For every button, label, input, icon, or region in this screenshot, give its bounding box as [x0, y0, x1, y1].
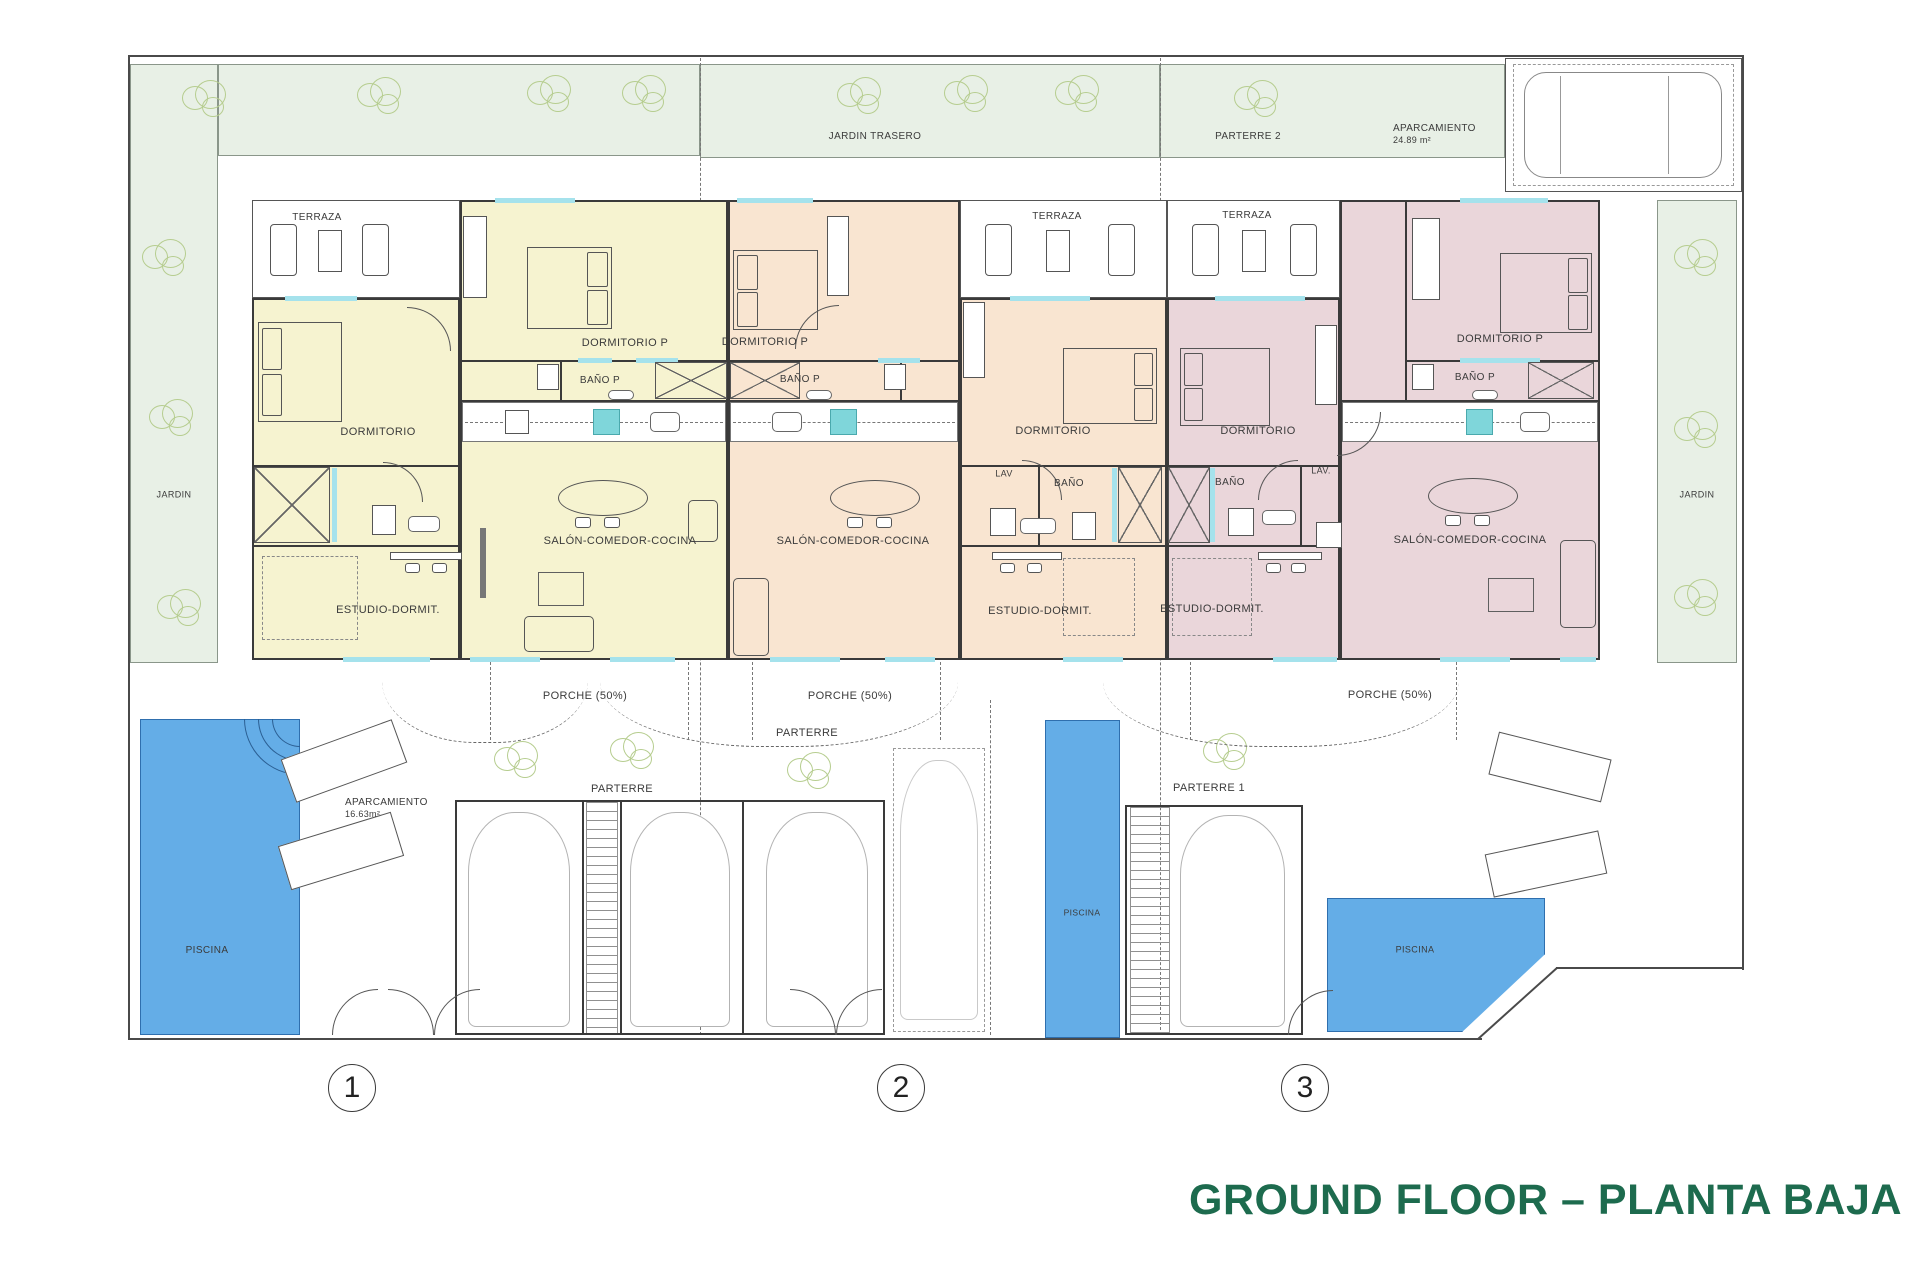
unit3-number-badge: 3 — [1281, 1064, 1329, 1112]
chair-icon — [1000, 563, 1015, 573]
label-unit3-dormitorio: DORMITORIO — [1220, 425, 1295, 439]
label-aparcamiento-1: APARCAMIENTO 16.63m² — [345, 796, 428, 821]
label-unit3-lav: LAV. — [1311, 465, 1331, 476]
stove-icon — [593, 409, 620, 435]
label-unit2-estudio: ESTUDIO-DORMIT. — [988, 605, 1092, 619]
label-unit1-porche: PORCHE (50%) — [543, 690, 627, 704]
wall — [582, 800, 584, 1035]
label-unit1-dormitorio: DORMITORIO — [340, 426, 415, 440]
desk-icon — [390, 552, 462, 560]
tv-icon — [480, 528, 486, 598]
site-boundary-bottom — [128, 1038, 1482, 1040]
stove-icon — [830, 409, 857, 435]
chair-icon — [1445, 515, 1461, 526]
site-boundary-right — [1742, 55, 1744, 970]
label-unit3-bano: BAÑO — [1215, 477, 1245, 490]
sofa-icon — [1560, 540, 1596, 628]
tree-icon — [622, 75, 668, 117]
chair-icon — [1027, 563, 1042, 573]
tree-icon — [1674, 239, 1720, 281]
tree-icon — [157, 589, 203, 631]
site-boundary-bottom-right — [1556, 967, 1744, 969]
chair-icon — [604, 517, 620, 528]
wall — [560, 360, 562, 400]
chair-icon — [405, 563, 420, 573]
unit1-number-badge: 1 — [328, 1064, 376, 1112]
desk-icon — [992, 552, 1062, 560]
porch-column-line — [752, 662, 753, 740]
sink-icon — [772, 412, 802, 432]
wardrobe-icon — [463, 216, 487, 298]
window — [1112, 468, 1117, 542]
wardrobe-icon — [1315, 325, 1337, 405]
aparcamiento-top-label: APARCAMIENTO — [1393, 122, 1476, 135]
label-unit3-salon: SALÓN-COMEDOR-COCINA — [1394, 534, 1547, 548]
tree-icon — [610, 732, 656, 774]
toilet-icon — [537, 364, 559, 390]
unit2-number-badge: 2 — [877, 1064, 925, 1112]
label-unit1-salon: SALÓN-COMEDOR-COCINA — [544, 535, 697, 549]
sink-icon — [608, 390, 634, 400]
label-jardin-left: JARDIN — [157, 489, 192, 500]
dining-table-icon — [830, 480, 920, 516]
porch-column-line — [1190, 662, 1191, 740]
terrace-table-icon — [1242, 230, 1266, 272]
garden-strip-left — [130, 64, 218, 663]
tree-icon — [357, 77, 403, 119]
tree-icon — [142, 239, 188, 281]
car-bay-icon — [468, 812, 570, 1027]
label-unit2-bano-p: BAÑO P — [780, 374, 820, 387]
window — [1010, 296, 1090, 301]
aparcamiento-1-label: APARCAMIENTO — [345, 796, 428, 809]
chair-icon — [847, 517, 863, 528]
chair-icon — [876, 517, 892, 528]
label-unit1-bano-p: BAÑO P — [580, 375, 620, 388]
tree-icon — [1674, 411, 1720, 453]
label-aparcamiento-top: APARCAMIENTO 24.89 m² — [1393, 122, 1476, 147]
tree-icon — [494, 741, 540, 783]
tree-icon — [527, 75, 573, 117]
bed-icon — [258, 322, 342, 422]
coffee-table-icon — [538, 572, 584, 606]
terrace-chair-icon — [985, 224, 1012, 276]
car-icon-top — [1524, 72, 1722, 178]
stairs — [586, 802, 618, 1033]
pool-unit2 — [1045, 720, 1120, 1038]
terrace-chair-icon — [362, 224, 389, 276]
label-unit3-terraza: TERRAZA — [1222, 210, 1271, 223]
label-piscina-3: PISCINA — [1396, 944, 1435, 955]
dining-table-icon — [558, 480, 648, 516]
gate-door-arc — [434, 989, 480, 1035]
stove-icon — [1466, 409, 1493, 435]
label-piscina-1: PISCINA — [186, 945, 229, 958]
wall — [960, 545, 1167, 547]
porch-column-line — [940, 662, 941, 740]
studio-bed-icon — [1063, 558, 1135, 636]
driveway-dash-line — [990, 700, 991, 1035]
shower-icon — [254, 467, 330, 543]
label-jardin-right: JARDIN — [1680, 489, 1715, 500]
window — [285, 296, 357, 301]
wardrobe-icon — [1412, 218, 1440, 300]
terrace-chair-icon — [1108, 224, 1135, 276]
label-parterre-center: PARTERRE — [776, 727, 838, 741]
bed-icon — [733, 250, 818, 330]
label-unit2-salon: SALÓN-COMEDOR-COCINA — [777, 535, 930, 549]
sink-icon — [408, 516, 440, 532]
label-unit3-bano-p: BAÑO P — [1455, 372, 1495, 385]
washer-icon — [1316, 522, 1342, 548]
chair-icon — [1474, 515, 1490, 526]
chair-icon — [575, 517, 591, 528]
chair-icon — [1291, 563, 1306, 573]
window — [1560, 657, 1596, 662]
terrace-chair-icon — [1290, 224, 1317, 276]
sink-icon — [1262, 510, 1296, 525]
label-parterre-left: PARTERRE — [591, 783, 653, 797]
wall — [620, 800, 622, 1035]
window — [737, 198, 813, 203]
aparcamiento-top-area: 24.89 m² — [1393, 135, 1476, 147]
floor-plan: JARDIN JARDIN JARDIN TRASERO PARTERRE 2 … — [0, 0, 1920, 1280]
sink-icon — [806, 390, 832, 400]
wall — [742, 800, 744, 1035]
car-windshield-line — [1560, 76, 1561, 174]
car-icon — [1488, 732, 1611, 803]
cabinet-icon — [505, 410, 529, 434]
label-unit3-porche: PORCHE (50%) — [1348, 689, 1432, 703]
porch-column-line — [1456, 662, 1457, 740]
tree-icon — [149, 399, 195, 441]
aparcamiento-1-area: 16.63m² — [345, 809, 428, 821]
chair-icon — [1266, 563, 1281, 573]
gate-door-arc — [388, 989, 434, 1035]
wardrobe-icon — [827, 216, 849, 296]
coffee-table-icon — [1488, 578, 1534, 612]
shower-icon — [1118, 467, 1162, 543]
tree-icon — [182, 80, 228, 122]
label-parterre-2: PARTERRE 2 — [1215, 131, 1281, 144]
window — [578, 358, 612, 363]
shower-icon — [655, 362, 727, 399]
label-unit1-estudio: ESTUDIO-DORMIT. — [336, 604, 440, 618]
bed-icon — [527, 247, 612, 329]
washer-icon — [1228, 508, 1254, 536]
car-bay-icon — [900, 760, 978, 1020]
window — [1460, 198, 1548, 203]
label-piscina-2: PISCINA — [1064, 908, 1101, 919]
label-jardin-trasero: JARDIN TRASERO — [829, 131, 922, 144]
site-boundary-top — [128, 55, 1744, 57]
sink-icon — [1520, 412, 1550, 432]
chair-icon — [432, 563, 447, 573]
tree-icon — [837, 77, 883, 119]
label-unit2-dormitorio-p: DORMITORIO P — [722, 336, 809, 350]
sink-icon — [650, 412, 680, 432]
wall — [252, 545, 460, 547]
page-title: GROUND FLOOR – PLANTA BAJA — [1189, 1176, 1902, 1225]
window — [878, 358, 920, 363]
sofa-icon — [733, 578, 769, 656]
label-unit2-porche: PORCHE (50%) — [808, 690, 892, 704]
tree-icon — [1234, 80, 1280, 122]
sofa-icon — [524, 616, 594, 652]
label-parterre-1: PARTERRE 1 — [1173, 782, 1245, 796]
porch-boundary — [1103, 660, 1459, 747]
label-unit3-estudio: ESTUDIO-DORMIT. — [1160, 603, 1264, 617]
car-icon — [1485, 830, 1608, 897]
label-unit2-dormitorio: DORMITORIO — [1015, 425, 1090, 439]
tree-icon — [944, 75, 990, 117]
wall — [1300, 465, 1302, 545]
wardrobe-icon — [963, 302, 985, 378]
label-unit1-dormitorio-p: DORMITORIO P — [582, 337, 669, 351]
car-windshield-line — [1668, 76, 1669, 174]
bed-icon — [1180, 348, 1270, 426]
terrace-table-icon — [318, 230, 342, 272]
terrace-chair-icon — [1192, 224, 1219, 276]
studio-bed-icon — [262, 556, 358, 640]
porch-column-line — [490, 662, 491, 740]
sink-icon — [1020, 518, 1056, 534]
window — [495, 198, 575, 203]
sink-icon — [1472, 390, 1498, 400]
toilet-icon — [1412, 364, 1434, 390]
toilet-icon — [1072, 512, 1096, 540]
car-bay-icon — [766, 812, 868, 1027]
window — [332, 468, 337, 542]
terrace-table-icon — [1046, 230, 1070, 272]
studio-bed-icon — [1172, 558, 1252, 636]
toilet-icon — [884, 364, 906, 390]
label-unit1-terraza: TERRAZA — [292, 212, 341, 225]
bed-icon — [1063, 348, 1157, 424]
wall — [1167, 545, 1340, 547]
shower-icon — [1528, 362, 1594, 399]
car-bay-icon — [1180, 815, 1285, 1027]
tree-icon — [1674, 579, 1720, 621]
terrace-chair-icon — [270, 224, 297, 276]
washer-icon — [372, 505, 396, 535]
bed-icon — [1500, 253, 1592, 333]
shower-icon — [1168, 467, 1210, 543]
porch-column-line — [688, 662, 689, 740]
dining-table-icon — [1428, 478, 1518, 514]
stairs — [1130, 807, 1170, 1033]
label-unit2-bano: BAÑO — [1054, 478, 1084, 491]
car-bay-icon — [630, 812, 730, 1027]
gate-door-arc — [332, 989, 378, 1035]
washer-icon — [990, 508, 1016, 536]
tree-icon — [787, 752, 833, 794]
label-unit2-terraza: TERRAZA — [1032, 211, 1081, 224]
wall — [1405, 200, 1407, 400]
label-unit2-lav: LAV — [995, 468, 1013, 479]
pool-unit3 — [1327, 898, 1545, 1032]
tree-icon — [1055, 75, 1101, 117]
desk-icon — [1258, 552, 1322, 560]
window — [1215, 296, 1305, 301]
label-unit3-dormitorio-p: DORMITORIO P — [1457, 333, 1544, 347]
